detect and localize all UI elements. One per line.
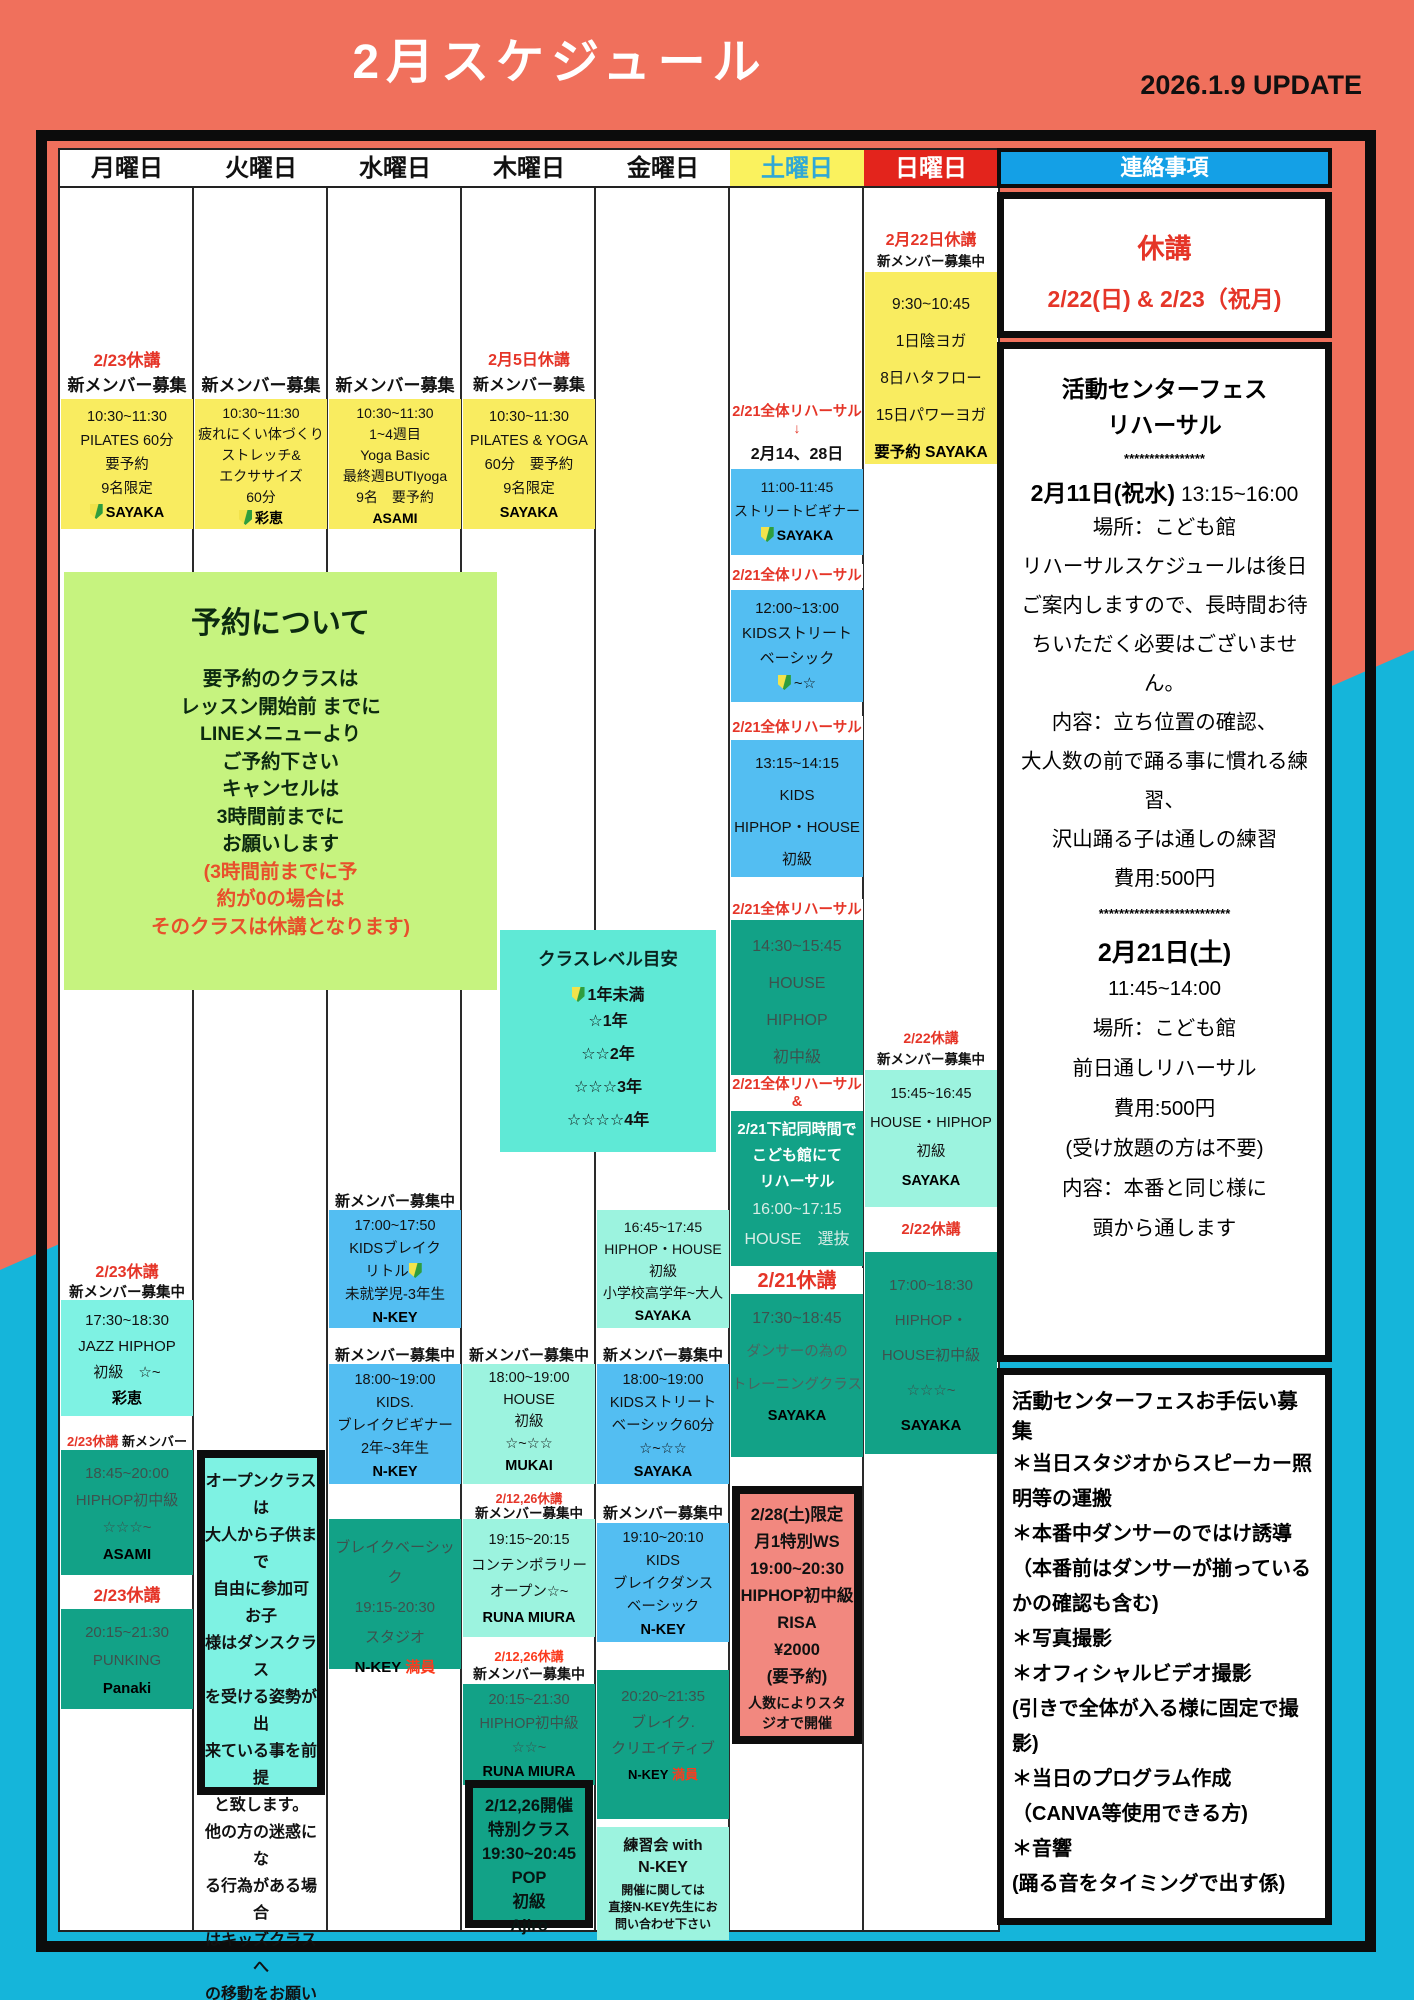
class-text: 19:15~20:15 コンテンポラリー オープン☆~ xyxy=(463,1527,595,1605)
sat-rehearsal-dates: 2月14、28日 xyxy=(732,440,862,464)
mon-pilates-class: 10:30~11:30 PILATES 60分 要予約 9名限定 SAYAKA xyxy=(61,399,193,529)
thu-pilates-yoga-class: 10:30~11:30 PILATES & YOGA 60分 要予約 9名限定 … xyxy=(463,399,595,529)
closure-dates: 2/22(日) & 2/23（祝月) xyxy=(1004,280,1325,314)
wed-yoga-class: 10:30~11:30 1~4週目 Yoga Basic 最終週BUTIyoga… xyxy=(329,399,461,529)
ws-main: 2/28(土)限定 月1特別WS 19:00~20:30 HIPHOP初中級 R… xyxy=(740,1502,854,1691)
day-header-thursday: 木曜日 xyxy=(462,150,596,188)
teacher-name: SAYAKA xyxy=(61,501,193,525)
fes-divider-1: **************** xyxy=(1012,451,1317,466)
fes-title: 活動センターフェス リハーサル xyxy=(1012,371,1317,443)
rehearsal-body: 16:00~17:15 HOUSE 選抜 xyxy=(731,1195,863,1255)
thu-hiphop-class: 20:15~21:30 HIPHOP初中級 ☆☆~ RUNA MIURA xyxy=(463,1684,595,1785)
sun-closed-note-2: 2/22休講 xyxy=(866,1028,996,1048)
beginner-icon xyxy=(239,510,252,525)
sun-recruit-note-2: 新メンバー募集中 xyxy=(866,1048,996,1068)
teacher-name: 彩恵 xyxy=(195,508,327,529)
closure-title: 休講 xyxy=(1004,227,1325,266)
class-time: 17:30~18:45 xyxy=(731,1310,863,1328)
wed-recruit-note-2: 新メンバー募集中 xyxy=(330,1190,460,1211)
sat-house-hiphop-class: 14:30~15:45 HOUSE HIPHOP 初中級 xyxy=(731,920,863,1075)
practice-teacher: N-KEY xyxy=(597,1857,729,1879)
class-text: 20:20~21:35 ブレイク. クリエイティブ xyxy=(597,1684,729,1762)
practice-note: 開催に関しては 直接N-KEY先生にお 問い合わせ下さい xyxy=(597,1882,729,1933)
fri-hiphop-house-class: 16:45~17:45 HIPHOP・HOUSE 初級 小学校高学年~大人 SA… xyxy=(597,1210,729,1328)
teacher-name: 彩恵 xyxy=(61,1386,193,1412)
sun-recruit-note: 新メンバー募集中 xyxy=(866,250,996,270)
wed-break-beginner-class: 18:00~19:00 KIDS. ブレイクビギナー 2年~3年生 N-KEY xyxy=(329,1364,461,1484)
teacher-name: SAYAKA xyxy=(865,1167,997,1196)
class-text: 18:00~19:00 HOUSE 初級 ☆~☆☆ xyxy=(463,1367,595,1455)
teacher-name: N-KEY xyxy=(329,1307,461,1330)
sat-rehearsal-note-2: 2/21全体リハーサル xyxy=(731,716,863,740)
teacher-name: SAYAKA xyxy=(597,1461,729,1484)
sat-kids-street-class: 12:00~13:00 KIDSストリート ベーシック ~☆ xyxy=(731,590,863,702)
beginner-icon xyxy=(778,675,791,690)
teacher-name: RUNA MIURA xyxy=(463,1605,595,1631)
class-text: 10:30~11:30 1~4週目 Yoga Basic 最終週BUTIyoga… xyxy=(329,403,461,508)
sat-kodomokan-rehearsal: 2/21下記同時間で こども館にて リハーサル 16:00~17:15 HOUS… xyxy=(731,1111,863,1266)
mon-closed-note: 2/23休講 xyxy=(62,346,192,371)
grade-line: 未就学児-3年生 xyxy=(329,1284,461,1307)
class-text: 15:45~16:45 HOUSE・HIPHOP 初級 xyxy=(865,1080,997,1167)
level-line: ~☆ xyxy=(731,671,863,696)
level-line: リトル xyxy=(329,1261,461,1284)
booking-body: 要予約のクラスは レッスン開始前 までに LINEメニューより ご予約下さい キ… xyxy=(64,666,497,859)
teacher-name: SAYAKA xyxy=(731,523,863,547)
sat-street-beginner-class: 11:00-11:45 ストリートビギナー SAYAKA xyxy=(731,469,863,555)
fes-time-1: 13:15~16:00 xyxy=(1175,483,1298,506)
fri-recruit-note-2: 新メンバー募集中 xyxy=(598,1502,728,1523)
wed-break-basic-class: ブレイクベーシック 19:15-20:30 スタジオ N-KEY 満員 xyxy=(329,1519,461,1669)
rehearsal-head: 2/21下記同時間で こども館にて リハーサル xyxy=(731,1117,863,1195)
teacher-name: N-KEY xyxy=(597,1619,729,1642)
reservation-line: 要予約 SAYAKA xyxy=(865,434,997,471)
sat-closed-note: 2/21休講 xyxy=(731,1268,863,1294)
ws-note: 人数によりスタ ジオで開催 xyxy=(740,1693,854,1733)
class-text: 18:45~20:00 HIPHOP初中級 ☆☆☆~ xyxy=(61,1460,193,1541)
day-header-saturday: 土曜日 xyxy=(730,150,864,188)
teacher-name: SAYAKA xyxy=(865,1408,997,1443)
fri-break-creative-class: 20:20~21:35 ブレイク. クリエイティブ N-KEY 満員 xyxy=(597,1670,729,1819)
teacher-name: MUKAI xyxy=(463,1455,595,1477)
wed-kids-break-class: 17:00~17:50 KIDSブレイク リトル 未就学児-3年生 N-KEY xyxy=(329,1210,461,1328)
tue-open-class-notice: オープンクラスは 大人から子供まで 自由に参加可 お子 様はダンスクラス を受け… xyxy=(197,1450,325,1795)
fri-practice-session: 練習会 with N-KEY 開催に関しては 直接N-KEY先生にお 問い合わせ… xyxy=(597,1827,729,1940)
sat-rehearsal-arrow: ↓ xyxy=(732,420,862,436)
contact-fes-box: 活動センターフェス リハーサル **************** 2月11日(祝… xyxy=(997,342,1332,1362)
booking-notice: 予約について 要予約のクラスは レッスン開始前 までに LINEメニューより ご… xyxy=(64,572,497,990)
thu-closed-note-3: 2/12,26休講 xyxy=(464,1646,594,1665)
class-text: 11:00-11:45 ストリートビギナー xyxy=(731,475,863,523)
full-badge: 満員 xyxy=(672,1767,698,1782)
legend-rows: ☆1年 ☆☆2年 ☆☆☆3年 ☆☆☆☆4年 xyxy=(500,1005,716,1137)
sun-yoga-class: 9:30~10:45 1日陰ヨガ 8日ハタフロー 15日パワーヨガ 要予約 SA… xyxy=(865,272,997,464)
contact-closure-box: 休講 2/22(日) & 2/23（祝月) xyxy=(997,192,1332,338)
thu-recruit-note-4: 新メンバー募集中 xyxy=(464,1664,594,1684)
teacher-name: SAYAKA xyxy=(463,501,595,525)
mon-hiphop-class: 18:45~20:00 HIPHOP初中級 ☆☆☆~ ASAMI xyxy=(61,1450,193,1575)
sun-hiphop-house-class: 17:00~18:30 HIPHOP・ HOUSE初中級 ☆☆☆~ SAYAKA xyxy=(865,1252,997,1454)
wed-recruit-note-3: 新メンバー募集中 xyxy=(330,1344,460,1365)
teacher-name: SAYAKA xyxy=(597,1304,729,1326)
fri-breakdance-class: 19:10~20:10 KIDS ブレイクダンス ベーシック N-KEY xyxy=(597,1523,729,1642)
class-text: 12:00~13:00 KIDSストリート ベーシック xyxy=(731,596,863,671)
teacher-line: N-KEY 満員 xyxy=(329,1653,461,1683)
sun-closed-note: 2月22日休講 xyxy=(866,226,996,250)
class-text: 10:30~11:30 疲れにくい体づくり ストレッチ& エクササイズ 60分 xyxy=(195,403,327,508)
help-items: ＊当日スタジオからスピーカー照明等の運搬 ＊本番中ダンサーのではけ誘導 （本番前… xyxy=(1012,1447,1317,1902)
contact-help-box: 活動センターフェスお手伝い募集 ＊当日スタジオからスピーカー照明等の運搬 ＊本番… xyxy=(997,1368,1332,1925)
class-text: 19:10~20:10 KIDS ブレイクダンス ベーシック xyxy=(597,1527,729,1619)
teacher-name: Panaki xyxy=(61,1675,193,1703)
booking-title: 予約について xyxy=(64,598,497,642)
closed-text: 2/23休講 xyxy=(67,1434,118,1449)
mon-recruit-note-2: 新メンバー募集中 xyxy=(62,1281,192,1302)
thu-contemporary-class: 19:15~20:15 コンテンポラリー オープン☆~ RUNA MIURA xyxy=(463,1519,595,1637)
practice-title: 練習会 with xyxy=(597,1835,729,1857)
teacher-line: N-KEY 満員 xyxy=(597,1762,729,1788)
teacher-name: N-KEY xyxy=(329,1461,461,1484)
fes-body-1: 場所：こども館 リハーサルスケジュールは後日ご案内しますので、長時間お待ちいただ… xyxy=(1012,508,1317,898)
day-header-tuesday: 火曜日 xyxy=(194,150,328,188)
mon-closed-note-2: 2/23休講 xyxy=(62,1258,192,1282)
page-title: 2月スケジュール xyxy=(100,22,1020,92)
class-text: 9:30~10:45 1日陰ヨガ 8日ハタフロー 15日パワーヨガ xyxy=(865,286,997,434)
fes-body-2: 11:45~14:00 場所：こども館 前日通しリハーサル 費用:500円 (受… xyxy=(1012,969,1317,1249)
beginner-icon xyxy=(572,987,585,1002)
sat-training-class: 17:30~18:45 ダンサーの為の トレーニングクラス SAYAKA xyxy=(731,1294,863,1457)
sat-rehearsal-note-4: 2/21全体リハーサル& xyxy=(731,1075,863,1111)
sat-special-ws: 2/28(土)限定 月1特別WS 19:00~20:30 HIPHOP初中級 R… xyxy=(732,1486,862,1744)
sat-rehearsal-note-3: 2/21全体リハーサル xyxy=(731,899,863,921)
legend-first-row: 1年未満 xyxy=(500,981,716,1005)
class-text: 10:30~11:30 PILATES & YOGA 60分 要予約 9名限定 xyxy=(463,405,595,501)
thu-closed-note: 2月5日休講 xyxy=(464,346,594,370)
schedule-poster: 2月スケジュール 2026.1.9 UPDATE 月曜日 火曜日 水曜日 木曜日… xyxy=(0,0,1414,2000)
fes-session-1: 2月11日(祝水) 13:15~16:00 xyxy=(1012,474,1317,508)
fri-kids-street-class: 18:00~19:00 KIDSストリート ベーシック60分 ☆~☆☆ SAYA… xyxy=(597,1364,729,1484)
class-text: 20:15~21:30 HIPHOP初中級 ☆☆~ xyxy=(463,1688,595,1760)
mon-jazz-class: 17:30~18:30 JAZZ HIPHOP 初級 ☆~ 彩恵 xyxy=(61,1300,193,1416)
schedule-table: 月曜日 火曜日 水曜日 木曜日 金曜日 土曜日 日曜日 2/23休講 新メンバー… xyxy=(58,148,1000,1932)
teacher-name: SAYAKA xyxy=(731,1408,863,1424)
class-text: 16:45~17:45 HIPHOP・HOUSE 初級 小学校高学年~大人 xyxy=(597,1216,729,1304)
sat-rehearsal-label: 2/21全体リハーサル xyxy=(732,400,862,421)
beginner-icon xyxy=(761,527,774,542)
day-header-monday: 月曜日 xyxy=(60,150,194,188)
mon-punking-class: 20:15~21:30 PUNKING Panaki xyxy=(61,1609,193,1709)
class-text: 18:00~19:00 KIDSストリート ベーシック60分 ☆~☆☆ xyxy=(597,1369,729,1461)
full-badge: 満員 xyxy=(405,1659,435,1676)
class-text: 17:00~18:30 HIPHOP・ HOUSE初中級 ☆☆☆~ xyxy=(865,1268,997,1408)
class-text: 17:30~18:30 JAZZ HIPHOP 初級 ☆~ xyxy=(61,1308,193,1386)
beginner-icon xyxy=(409,1263,422,1278)
class-text: 18:00~19:00 KIDS. ブレイクビギナー 2年~3年生 xyxy=(329,1369,461,1461)
class-level-legend: クラスレベル目安 1年未満 ☆1年 ☆☆2年 ☆☆☆3年 ☆☆☆☆4年 xyxy=(500,930,716,1152)
sun-house-hiphop-class: 15:45~16:45 HOUSE・HIPHOP 初級 SAYAKA xyxy=(865,1070,997,1207)
class-text: 20:15~21:30 PUNKING xyxy=(61,1619,193,1675)
booking-warning: (3時間前までに予 約が0の場合は そのクラスは休講となります) xyxy=(64,859,497,942)
legend-title: クラスレベル目安 xyxy=(500,946,716,971)
fes-date-2: 2月21日(土) xyxy=(1012,933,1317,969)
teacher-name: ASAMI xyxy=(61,1541,193,1568)
class-text: 17:00~17:50 KIDSブレイク xyxy=(329,1215,461,1261)
mon-closed-note-3: 2/23休講 xyxy=(62,1581,192,1607)
sat-rehearsal-note-1: 2/21全体リハーサル xyxy=(731,564,863,588)
day-header-sunday: 日曜日 xyxy=(864,150,998,188)
thu-pop-special-class: 2/12,26開催 特別クラス 19:30~20:45 POP 初級 Ajiro xyxy=(465,1780,593,1928)
fes-date-1: 2月11日(祝水) xyxy=(1031,480,1175,506)
class-text: 10:30~11:30 PILATES 60分 要予約 9名限定 xyxy=(61,405,193,501)
tue-stretch-class: 10:30~11:30 疲れにくい体づくり ストレッチ& エクササイズ 60分 … xyxy=(195,399,327,529)
thu-house-class: 18:00~19:00 HOUSE 初級 ☆~☆☆ MUKAI xyxy=(463,1364,595,1484)
day-header-wednesday: 水曜日 xyxy=(328,150,462,188)
beginner-icon xyxy=(90,504,103,519)
update-date: 2026.1.9 UPDATE xyxy=(1140,70,1362,101)
sun-closed-note-3: 2/22休講 xyxy=(865,1216,997,1244)
help-title: 活動センターフェスお手伝い募集 xyxy=(1012,1387,1317,1447)
class-text: ダンサーの為の トレーニングクラス xyxy=(731,1336,863,1402)
fri-recruit-note: 新メンバー募集中 xyxy=(598,1344,728,1365)
sat-kids-hiphop-class: 13:15~14:15 KIDS HIPHOP・HOUSE 初級 xyxy=(731,740,863,877)
class-text: ブレイクベーシック 19:15-20:30 スタジオ xyxy=(329,1533,461,1653)
contact-header: 連絡事項 xyxy=(997,148,1332,188)
thu-recruit-note-2: 新メンバー募集中 xyxy=(464,1344,594,1365)
teacher-name: ASAMI xyxy=(329,508,461,529)
day-header-friday: 金曜日 xyxy=(596,150,730,188)
fes-divider-2: ************************** xyxy=(1012,906,1317,921)
